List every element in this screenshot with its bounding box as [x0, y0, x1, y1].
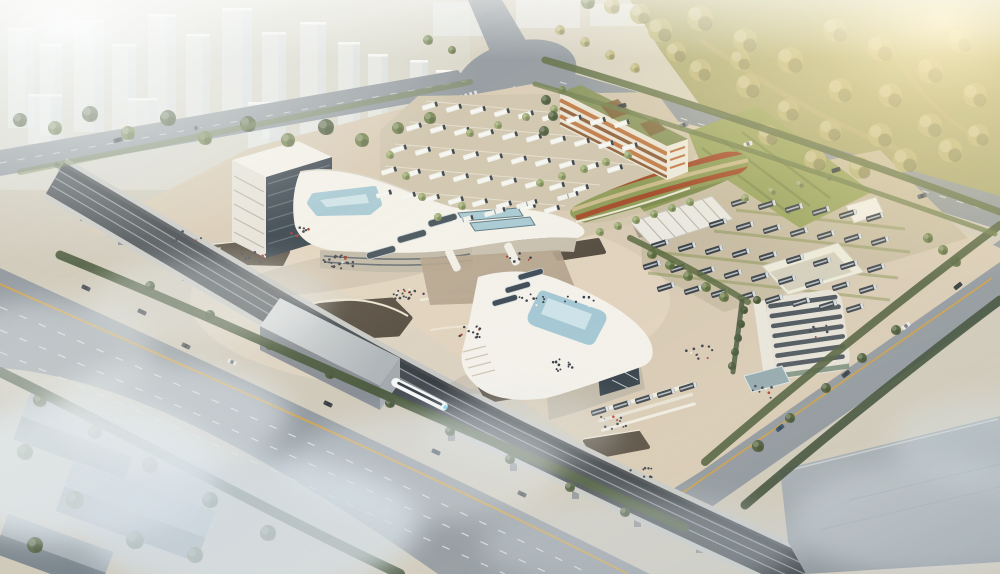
- rendering-canvas: [0, 0, 1000, 574]
- aerial-rendering: [0, 0, 1000, 574]
- light-rays: [0, 0, 1000, 574]
